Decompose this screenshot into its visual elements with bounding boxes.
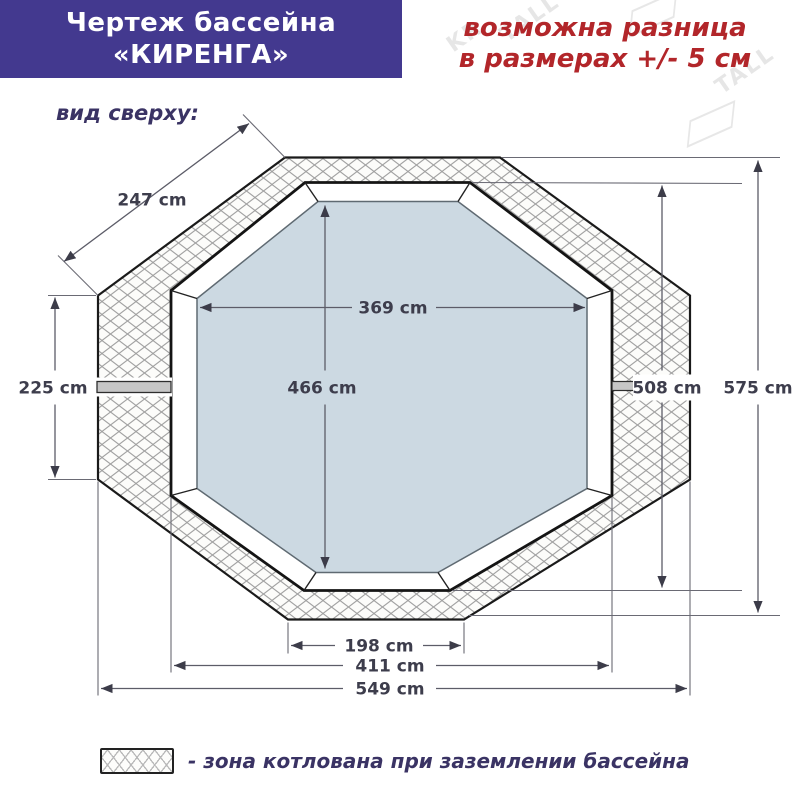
dim-frame-width: 411 cm <box>355 657 424 677</box>
dim-inner-height: 466 cm <box>287 379 356 399</box>
legend: - зона котлована при заземлении бассейна <box>100 744 689 778</box>
title-line1: Чертеж бассейна <box>66 7 336 39</box>
title-line2: «КИРЕНГА» <box>113 39 289 71</box>
water-surface-octagon <box>197 202 587 573</box>
dim-inner-width: 369 cm <box>358 299 427 319</box>
dim-frame-height: 508 cm <box>632 379 701 399</box>
hatch-swatch-icon <box>100 748 174 774</box>
pool-top-view-drawing: 247 cm 225 cm 369 cm 466 cm 508 cm 575 c… <box>0 95 800 720</box>
dim-outer-height: 575 cm <box>723 379 792 399</box>
seam-band-left <box>97 382 171 393</box>
tolerance-line2: в размерах +/- 5 см <box>459 44 752 75</box>
dim-left-side: 225 cm <box>18 379 87 399</box>
view-label: вид сверху: <box>56 101 199 125</box>
dim-bottom-side: 198 cm <box>344 637 413 657</box>
tolerance-note: возможна разница в размерах +/- 5 см <box>420 6 790 82</box>
dim-diagonal-side: 247 cm <box>117 191 186 211</box>
title-banner: Чертеж бассейна «КИРЕНГА» <box>0 0 402 78</box>
dim-outer-width: 549 cm <box>355 680 424 700</box>
tolerance-line1: возможна разница <box>463 13 746 44</box>
legend-label: - зона котлована при заземлении бассейна <box>188 749 689 773</box>
pool-drawing-page: KR TALL TALL Чертеж бассейна «КИРЕНГА» в… <box>0 0 800 800</box>
